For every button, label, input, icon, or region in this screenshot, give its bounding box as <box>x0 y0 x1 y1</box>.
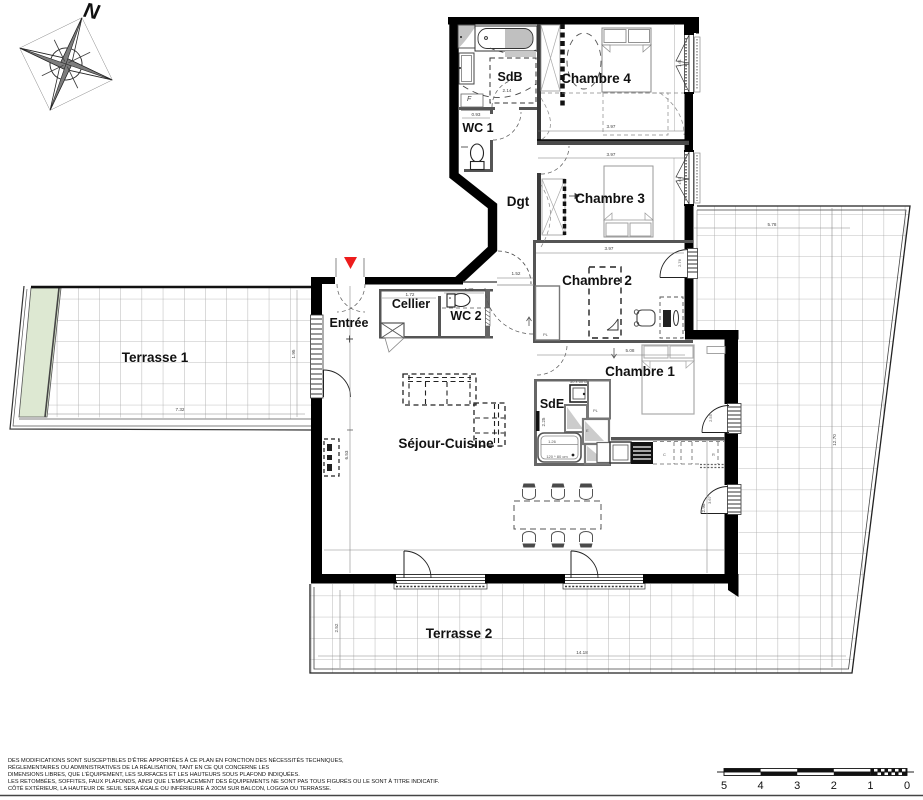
svg-text:CÔTÉ EXTÉRIEUR, LA HAUTEUR DE: CÔTÉ EXTÉRIEUR, LA HAUTEUR DE SEUIL SERA… <box>8 785 332 792</box>
svg-text:1.95: 1.95 <box>291 349 296 358</box>
svg-text:7.32: 7.32 <box>176 407 185 412</box>
svg-text:4: 4 <box>758 780 764 792</box>
svg-text:E: E <box>586 428 589 433</box>
svg-text:2.95: 2.95 <box>701 503 706 512</box>
svg-text:14.18: 14.18 <box>576 650 588 655</box>
svg-text:5: 5 <box>721 780 727 792</box>
svg-text:DIMENSIONS LIBRES, QUE L’ÉQUIP: DIMENSIONS LIBRES, QUE L’ÉQUIPEMENT, LES… <box>8 771 300 778</box>
svg-text:3.97: 3.97 <box>607 152 616 157</box>
svg-text:Terrasse 1: Terrasse 1 <box>122 350 189 365</box>
svg-text:DES MODIFICATIONS SONT SUSCEPT: DES MODIFICATIONS SONT SUSCEPTIBLES D’ÊT… <box>8 756 344 764</box>
svg-text:Chambre 1: Chambre 1 <box>605 364 675 379</box>
svg-text:1.61: 1.61 <box>677 176 682 185</box>
svg-text:Terrasse 2: Terrasse 2 <box>426 626 493 641</box>
svg-text:3.97: 3.97 <box>607 124 616 129</box>
svg-text:WC 2: WC 2 <box>450 309 481 323</box>
svg-text:6.53: 6.53 <box>344 450 349 459</box>
svg-text:2.25: 2.25 <box>541 417 546 426</box>
svg-text:1: 1 <box>867 780 873 792</box>
svg-text:2.76: 2.76 <box>677 258 682 267</box>
svg-text:Chambre 4: Chambre 4 <box>561 71 631 86</box>
svg-text:Entrée: Entrée <box>330 316 369 330</box>
svg-text:LES RETOMBÉES, SOFFITES, FAUX: LES RETOMBÉES, SOFFITES, FAUX PLAFONDS, … <box>8 778 440 785</box>
svg-text:Dgt: Dgt <box>507 194 530 209</box>
svg-text:1.72: 1.72 <box>406 292 415 297</box>
svg-text:WC 1: WC 1 <box>462 121 493 135</box>
svg-text:PL: PL <box>543 332 549 337</box>
svg-text:R: R <box>712 452 715 457</box>
svg-text:0.93: 0.93 <box>472 112 481 117</box>
svg-text:3.67: 3.67 <box>707 495 712 504</box>
svg-text:2.55: 2.55 <box>708 413 713 422</box>
svg-text:5.08: 5.08 <box>626 348 635 353</box>
svg-text:1.30: 1.30 <box>465 287 474 292</box>
svg-text:2: 2 <box>831 780 837 792</box>
svg-text:Cellier: Cellier <box>392 297 430 311</box>
svg-text:F: F <box>467 96 472 103</box>
svg-text:Séjour-Cuisine: Séjour-Cuisine <box>398 436 494 451</box>
svg-text:3: 3 <box>794 780 800 792</box>
svg-text:RÉGLEMENTAIRES OU ADMINISTRATI: RÉGLEMENTAIRES OU ADMINISTRATIVES DE LA … <box>8 764 269 771</box>
svg-text:1.52: 1.52 <box>512 271 521 276</box>
svg-text:2.52: 2.52 <box>334 623 339 632</box>
svg-text:3.97: 3.97 <box>605 246 614 251</box>
svg-text:2.14: 2.14 <box>503 88 512 93</box>
svg-text:SdE: SdE <box>540 397 564 411</box>
svg-text:PL: PL <box>593 408 599 413</box>
svg-text:1.26: 1.26 <box>548 439 557 444</box>
svg-text:0: 0 <box>904 780 910 792</box>
svg-text:5.78: 5.78 <box>768 222 777 227</box>
svg-text:Chambre 3: Chambre 3 <box>575 191 645 206</box>
svg-text:SdB: SdB <box>498 70 523 84</box>
svg-text:1.61: 1.61 <box>677 58 682 67</box>
svg-text:Chambre 2: Chambre 2 <box>562 273 632 288</box>
svg-text:C: C <box>663 452 666 457</box>
svg-text:12.70: 12.70 <box>832 434 837 446</box>
svg-text:120 * 80 cm: 120 * 80 cm <box>546 454 568 459</box>
